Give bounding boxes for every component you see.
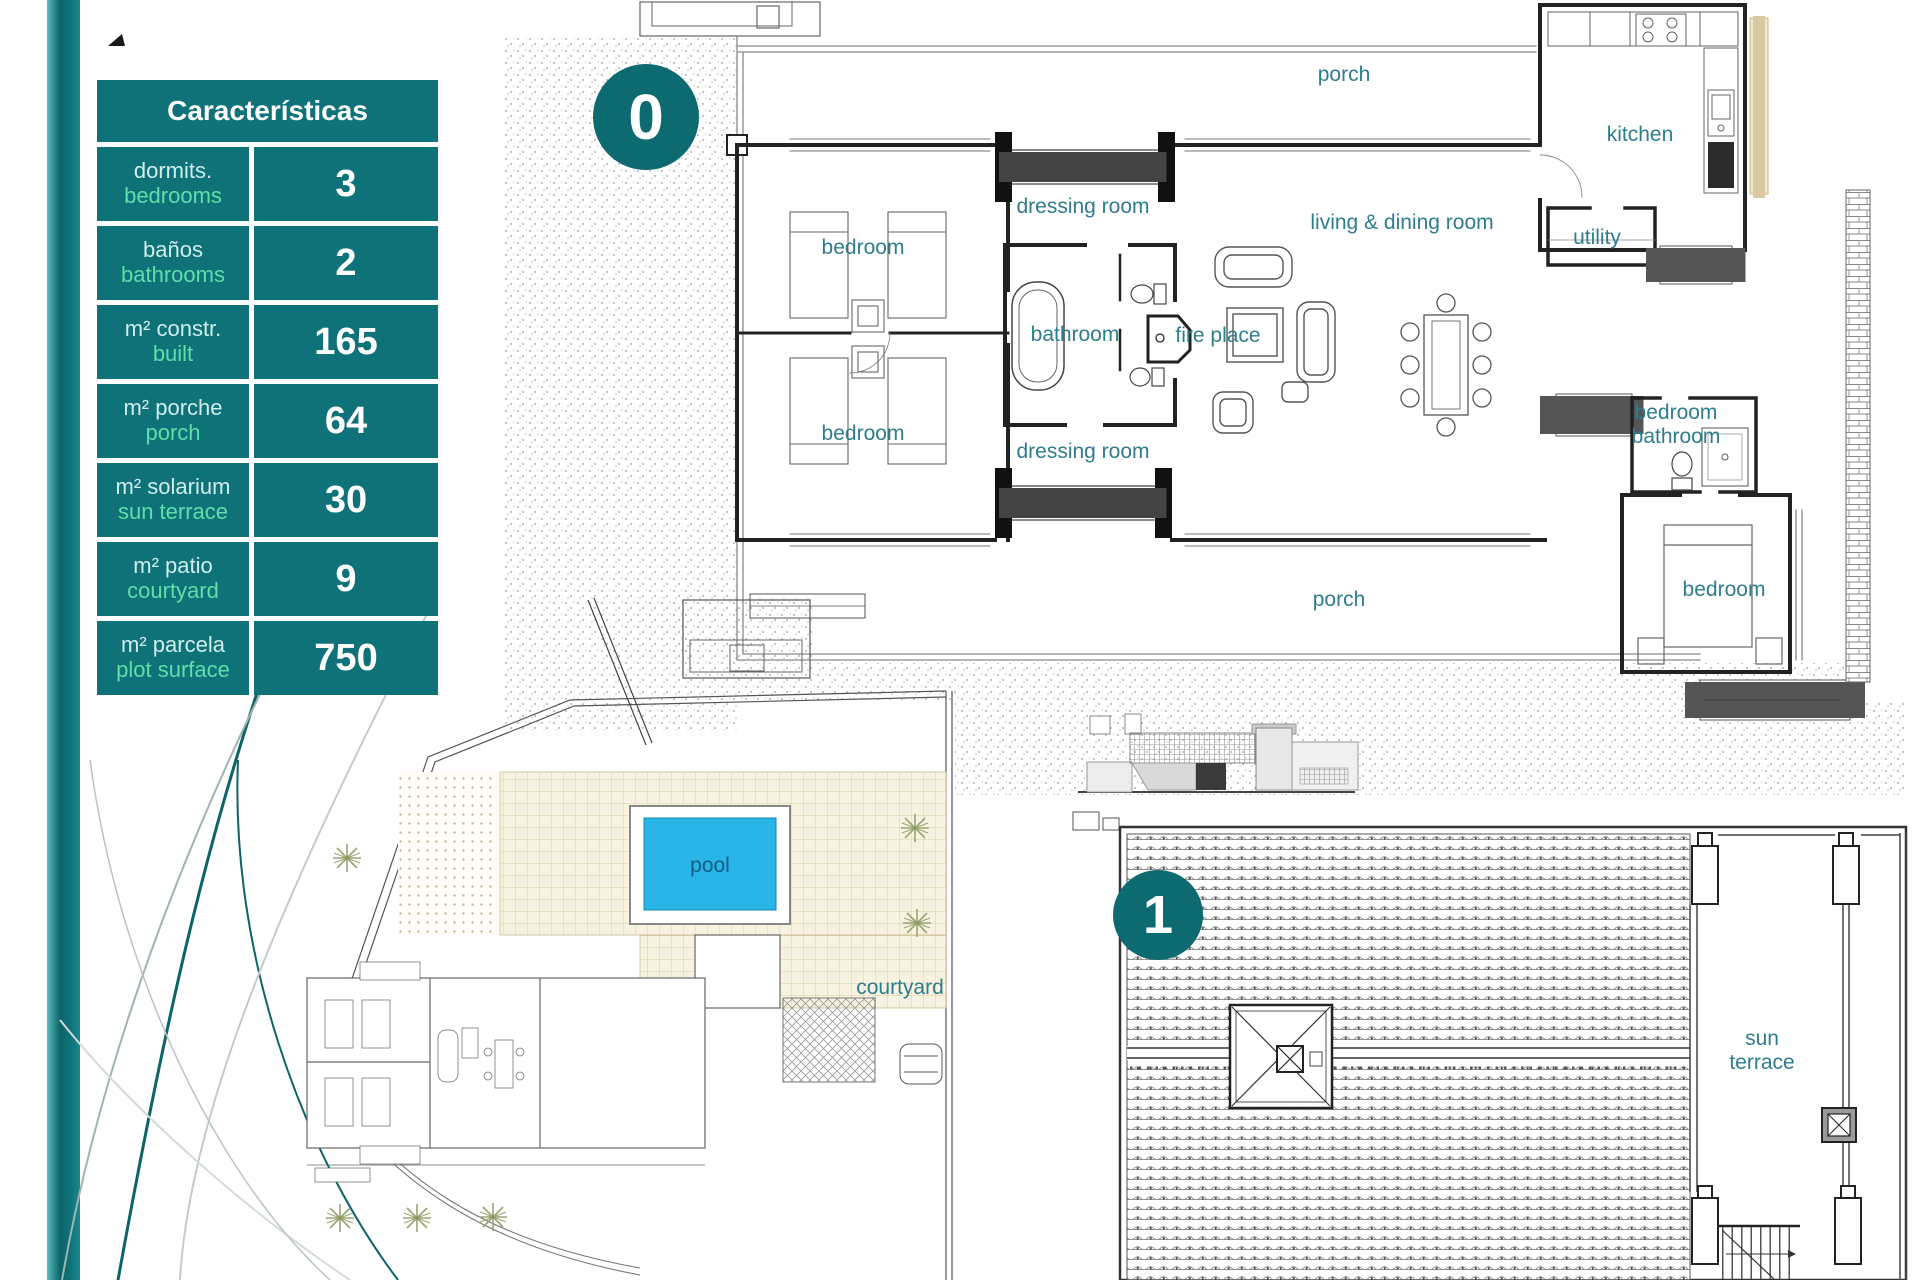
label-dressing-bottom: dressing room <box>1016 440 1149 464</box>
row-label-es: m² porche <box>123 396 222 421</box>
label-living-dining: living & dining room <box>1310 211 1493 235</box>
label-bedroom-ml: bedroom <box>822 422 905 446</box>
table-row: m² solariumsun terrace 30 <box>97 463 438 537</box>
label-pool: pool <box>690 854 730 878</box>
label-porch-top: porch <box>1318 63 1371 87</box>
row-label-es: m² constr. <box>125 317 222 342</box>
car <box>900 1044 942 1084</box>
table-row: m² parcelaplot surface 750 <box>97 621 438 695</box>
row-label-en: sun terrace <box>118 500 228 525</box>
label-bedroom-bathroom: bedroom bathroom <box>1626 401 1726 449</box>
label-bathroom: bathroom <box>1031 323 1120 347</box>
label-bedroom-tl: bedroom <box>822 236 905 260</box>
row-label-es: m² parcela <box>121 633 225 658</box>
skylight <box>1230 1005 1332 1108</box>
row-label-es: baños <box>143 238 203 263</box>
corner-mark <box>108 34 125 46</box>
floor-plan-0-drawing <box>640 2 1870 720</box>
floor-marker-1: 1 <box>1113 870 1203 960</box>
table-row: bañosbathrooms 2 <box>97 226 438 300</box>
label-fireplace: fire place <box>1175 324 1260 348</box>
row-value: 30 <box>254 463 438 537</box>
row-label-en: porch <box>145 421 200 446</box>
row-value: 9 <box>254 542 438 616</box>
row-value: 3 <box>254 147 438 221</box>
label-porch-bottom: porch <box>1313 588 1366 612</box>
row-value: 64 <box>254 384 438 458</box>
table-row: m² porcheporch 64 <box>97 384 438 458</box>
row-label-en: plot surface <box>116 658 230 683</box>
floor-marker-0: 0 <box>593 64 699 170</box>
row-value: 165 <box>254 305 438 379</box>
row-label-es: m² solarium <box>116 475 231 500</box>
row-label-es: m² patio <box>133 554 212 579</box>
label-bedroom-br: bedroom <box>1683 578 1766 602</box>
table-row: m² patiocourtyard 9 <box>97 542 438 616</box>
row-value: 750 <box>254 621 438 695</box>
row-label-es: dormits. <box>134 159 212 184</box>
label-dressing-top: dressing room <box>1016 195 1149 219</box>
decorative-swoosh <box>60 608 430 1280</box>
row-value: 2 <box>254 226 438 300</box>
table-row: dormits.bedrooms 3 <box>97 147 438 221</box>
characteristics-table: Características dormits.bedrooms 3 baños… <box>97 80 438 700</box>
courtyard-patio <box>783 998 875 1082</box>
label-courtyard: courtyard <box>856 976 944 1000</box>
mini-house <box>307 935 780 1182</box>
roof-access-box <box>1822 1108 1856 1142</box>
row-label-en: courtyard <box>127 579 219 604</box>
label-kitchen: kitchen <box>1607 123 1674 147</box>
row-label-en: bathrooms <box>121 263 225 288</box>
row-label-en: built <box>153 342 193 367</box>
label-utility: utility <box>1573 226 1621 250</box>
label-sun-terrace: sun terrace <box>1712 1027 1812 1075</box>
row-label-en: bedrooms <box>124 184 222 209</box>
table-title: Características <box>97 80 438 142</box>
table-row: m² constr.built 165 <box>97 305 438 379</box>
brochure-page: Características dormits.bedrooms 3 baños… <box>0 0 1920 1280</box>
